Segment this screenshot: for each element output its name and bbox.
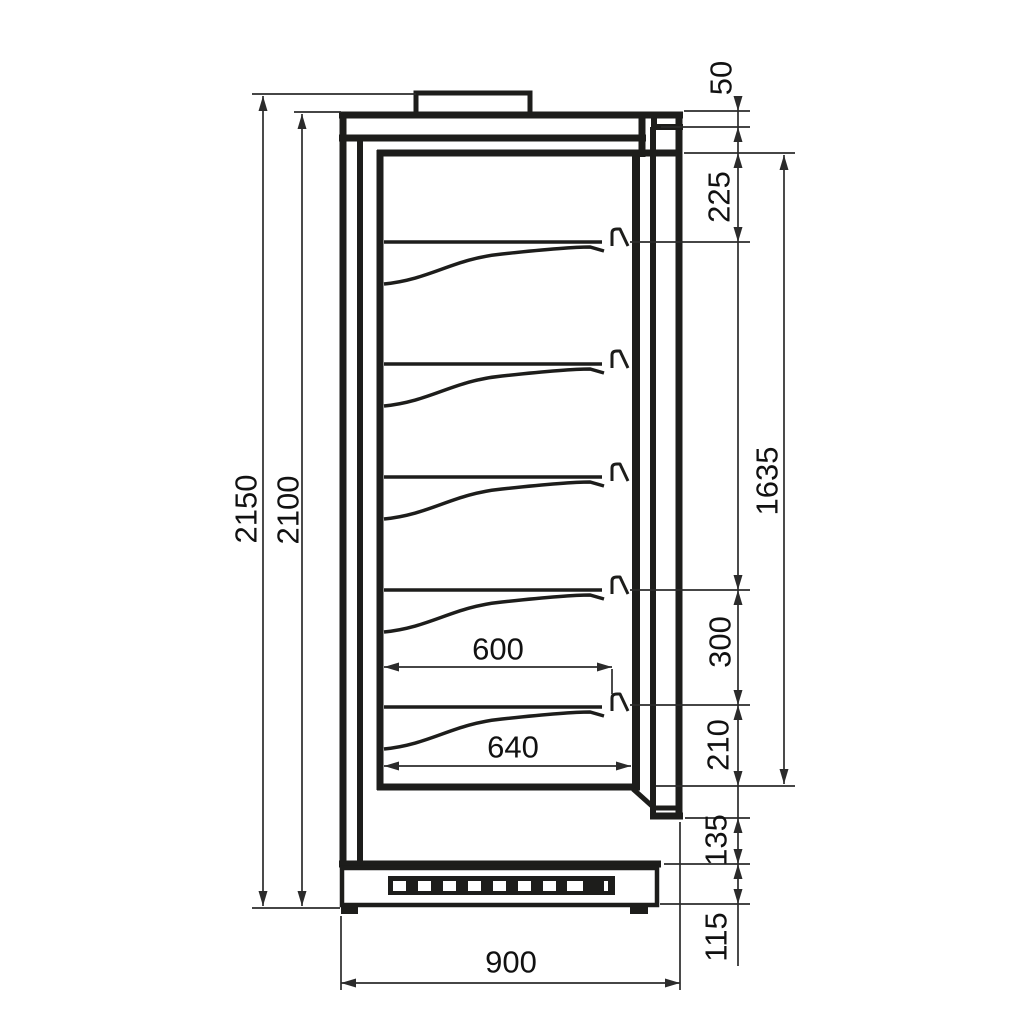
arrowhead (597, 663, 612, 672)
arrowhead (734, 818, 743, 833)
arrowhead (665, 979, 680, 988)
cabinet-section-drawing: 2150 2100 50 225 1635 300 210 135 115 60… (0, 0, 1024, 1024)
arrowhead (616, 762, 631, 771)
arrowhead (734, 575, 743, 590)
dim-label-shelf-gap: 300 (703, 616, 738, 668)
arrowhead (298, 891, 307, 906)
arrowhead (259, 891, 268, 906)
dim-label-top-to-first-shelf: 225 (702, 171, 737, 223)
shelf-1 (384, 229, 628, 284)
foot-left (341, 905, 358, 914)
arrowhead (734, 590, 743, 605)
dim-label-overall-height: 2150 (229, 475, 264, 544)
dim-label-lower-panel: 135 (699, 814, 734, 866)
dim-label-canopy-height: 50 (704, 61, 739, 95)
arrowhead (780, 769, 789, 784)
arrowhead (734, 864, 743, 879)
shelves (384, 229, 628, 749)
arrowhead (734, 705, 743, 720)
shelf-4 (384, 577, 628, 632)
arrowhead (384, 663, 399, 672)
dim-label-base-height: 115 (699, 912, 734, 961)
dim-label-overall-depth: 900 (485, 945, 537, 980)
cabinet-structure (339, 93, 683, 914)
arrowhead (780, 155, 789, 170)
shelf-2 (384, 351, 628, 406)
floor-front-diagonal (633, 789, 652, 806)
arrowhead (734, 889, 743, 904)
arrowhead (298, 114, 307, 129)
grille-slots (393, 881, 608, 891)
dim-label-interior-height: 1635 (750, 447, 785, 516)
arrowhead (734, 227, 743, 242)
dim-label-last-shelf-to-floor: 210 (701, 719, 736, 771)
arrowhead (734, 849, 743, 864)
arrowhead (259, 96, 268, 111)
foot-right (630, 905, 648, 914)
dim-label-body-height: 2100 (271, 476, 306, 545)
arrowhead (384, 762, 399, 771)
arrowhead (734, 127, 743, 142)
technical-drawing-page: 2150 2100 50 225 1635 300 210 135 115 60… (0, 0, 1024, 1024)
arrowhead (734, 96, 743, 111)
dim-label-shelf-depth: 600 (472, 632, 524, 667)
dimension-labels: 2150 2100 50 225 1635 300 210 135 115 60… (229, 61, 785, 980)
shelf-3 (384, 464, 628, 519)
arrowhead (734, 153, 743, 168)
dim-label-interior-depth: 640 (487, 730, 539, 765)
arrowhead (341, 979, 356, 988)
arrowhead (734, 771, 743, 786)
arrowhead (734, 690, 743, 705)
